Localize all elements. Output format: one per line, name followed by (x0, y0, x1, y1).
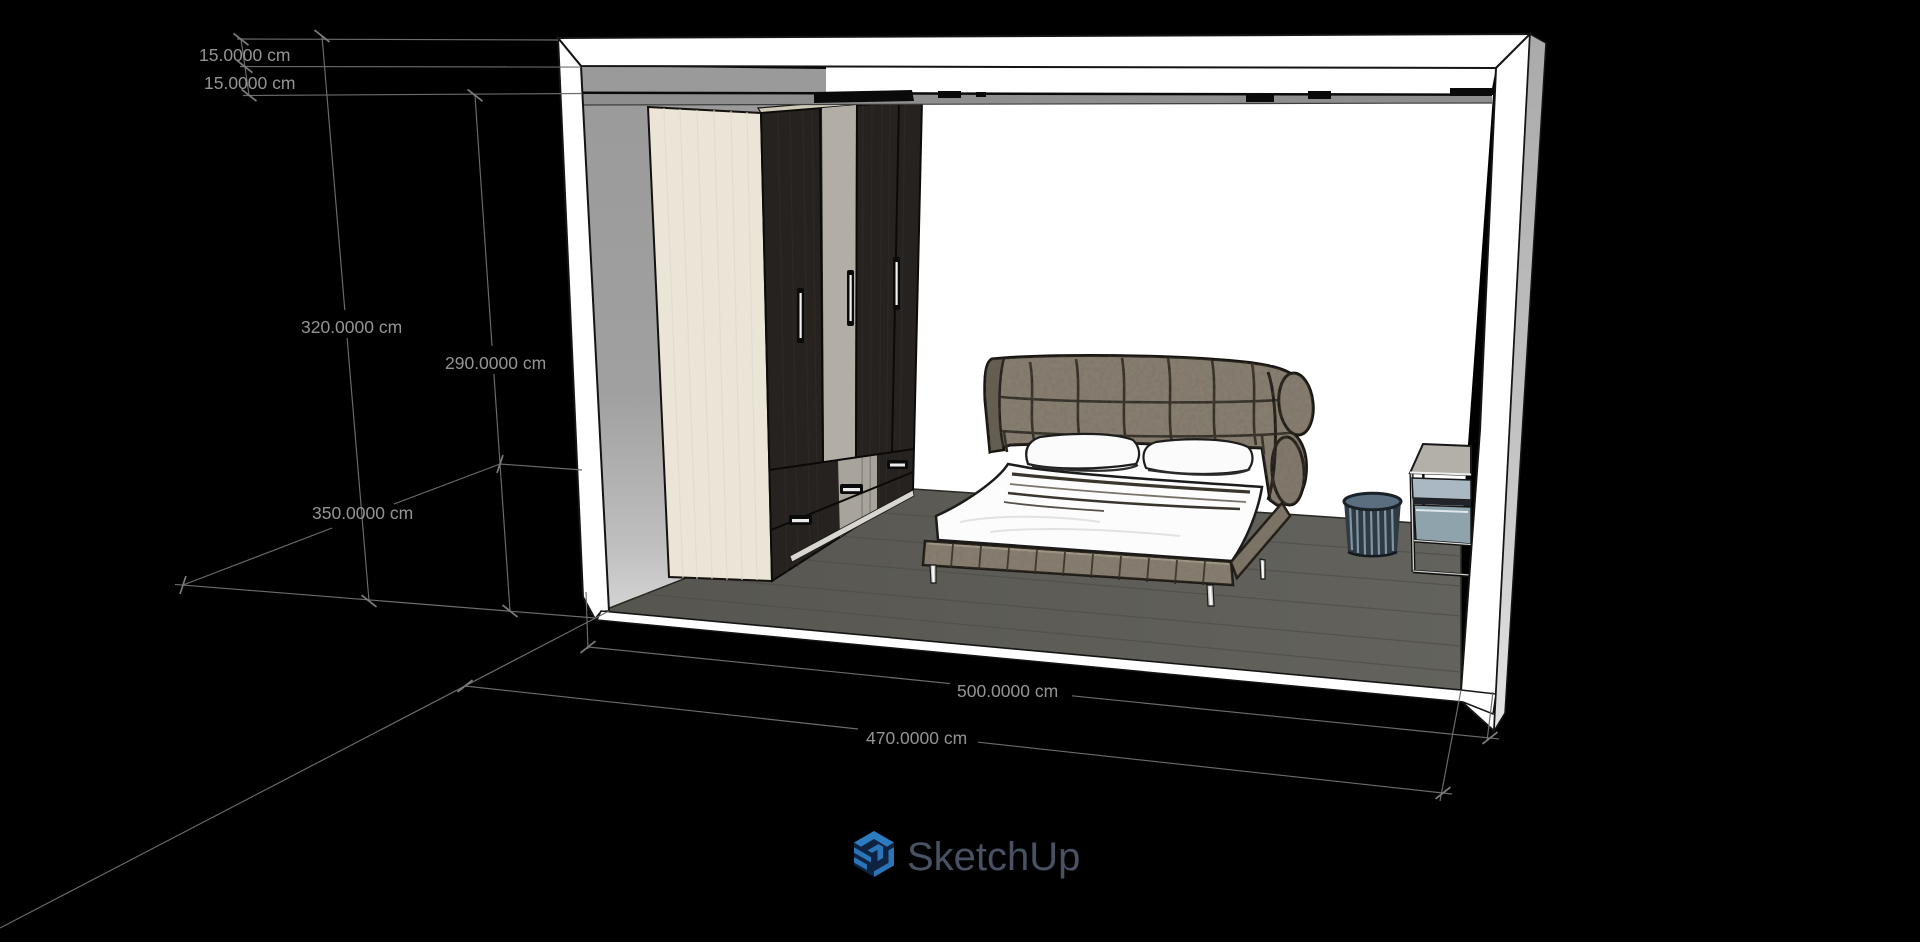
svg-text:350.0000 cm: 350.0000 cm (312, 503, 413, 523)
svg-text:15.0000 cm: 15.0000 cm (204, 73, 295, 93)
svg-text:290.0000 cm: 290.0000 cm (445, 353, 546, 373)
svg-text:SketchUp: SketchUp (907, 835, 1080, 879)
svg-text:470.0000 cm: 470.0000 cm (866, 728, 967, 748)
svg-text:500.0000 cm: 500.0000 cm (957, 681, 1058, 701)
svg-text:15.0000 cm: 15.0000 cm (199, 45, 290, 65)
svg-text:320.0000 cm: 320.0000 cm (301, 317, 402, 337)
